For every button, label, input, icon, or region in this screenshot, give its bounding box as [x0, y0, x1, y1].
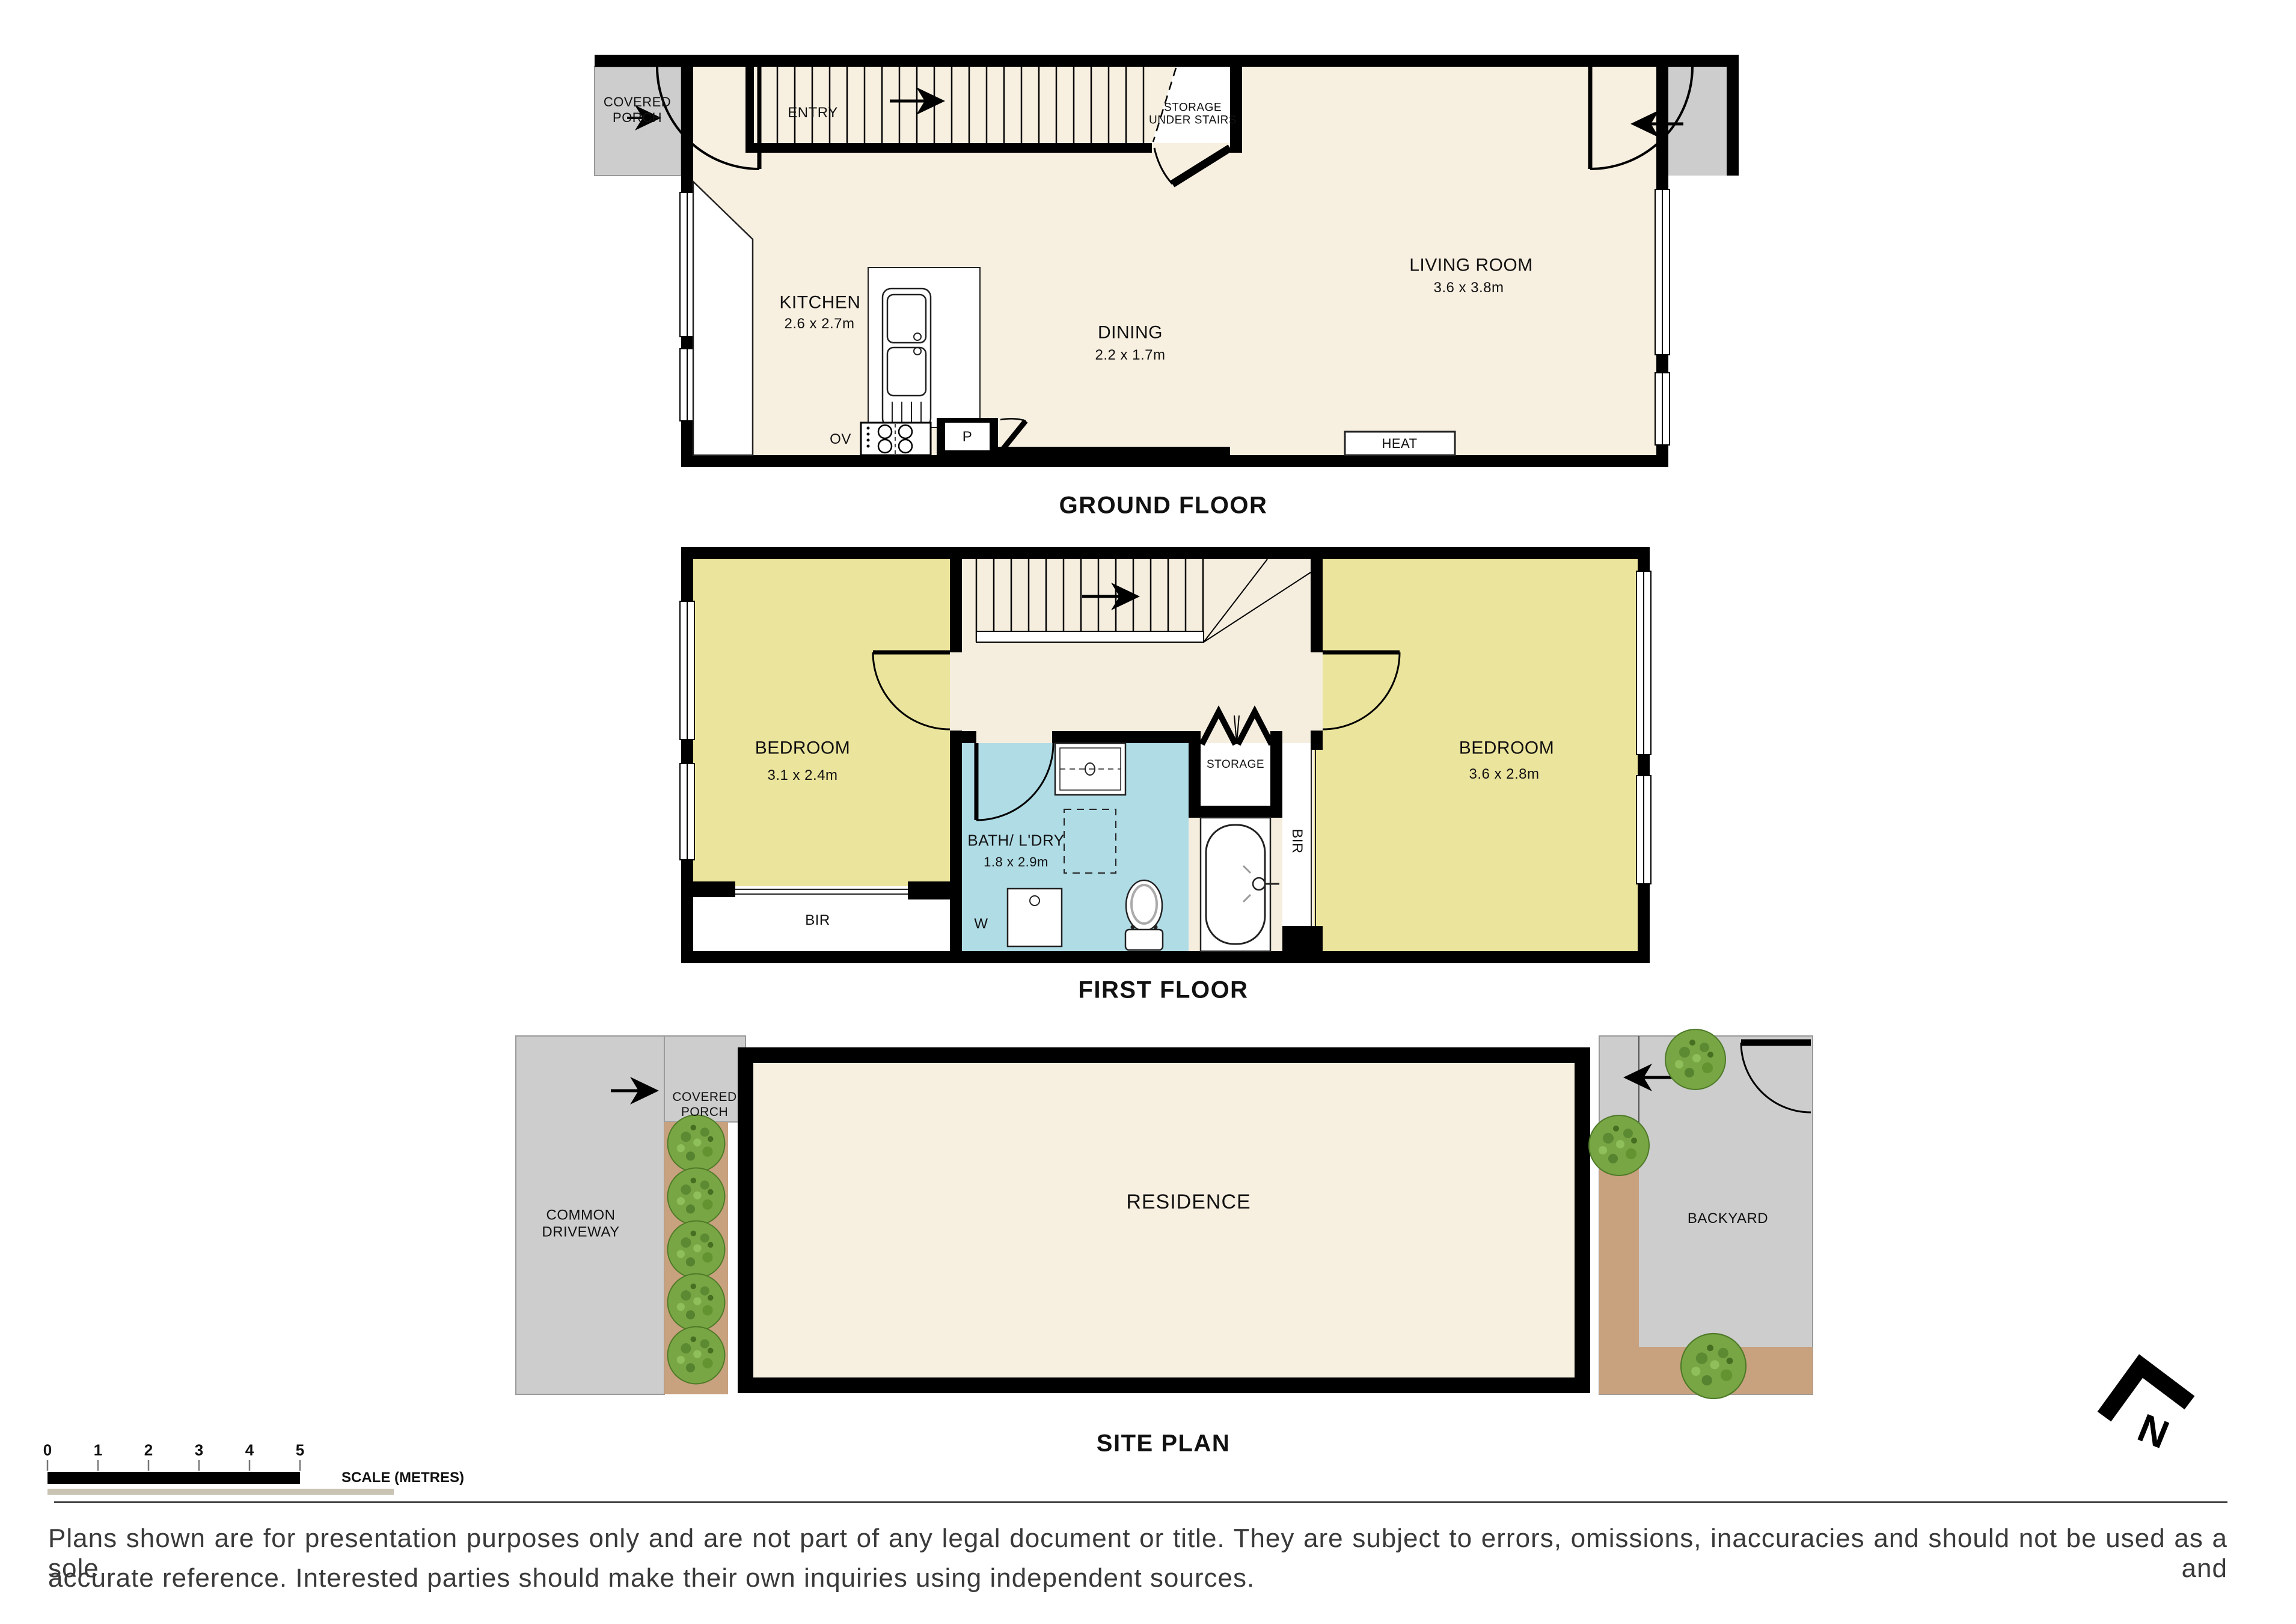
ff-bedroom-left-label: BEDROOM: [755, 737, 851, 758]
gf-dining-label: DINING: [1098, 322, 1163, 343]
gf-right-windows: [1655, 189, 1670, 445]
ground-floor-title: GROUND FLOOR: [1059, 491, 1268, 519]
scale-tick-5: 5: [296, 1441, 304, 1460]
gf-storage-under-stairs-label: STORAGE UNDER STAIRS: [1149, 102, 1237, 127]
ff-washer-label: W: [974, 916, 988, 933]
sp-common-driveway-label: COMMON DRIVEWAY: [542, 1207, 619, 1242]
gf-kitchen-dims: 2.6 x 2.7m: [784, 316, 854, 332]
gf-dining-dims: 2.2 x 1.7m: [1095, 347, 1165, 364]
gf-entry-label: ENTRY: [788, 105, 837, 121]
scale-tick-4: 4: [245, 1441, 254, 1460]
scale-tick-1: 1: [94, 1441, 102, 1460]
gf-living-room-dims: 3.6 x 3.8m: [1433, 280, 1504, 296]
first-floor-title: FIRST FLOOR: [1078, 976, 1248, 1004]
gf-living-room-label: LIVING ROOM: [1409, 254, 1533, 275]
floorplan-graphics: [0, 0, 2296, 1624]
ff-toilet: [1125, 880, 1163, 950]
ff-right-windows: [1636, 571, 1651, 884]
ff-bath-label: BATH/ L'DRY: [967, 832, 1064, 850]
sp-residence-block: [745, 1055, 1582, 1385]
scale-tick-2: 2: [144, 1441, 153, 1460]
site-plan-title: SITE PLAN: [1097, 1429, 1230, 1457]
gf-covered-porch-label: COVERED PORCH: [604, 94, 671, 126]
ff-bir-right-label: BIR: [1288, 829, 1305, 854]
ff-bedroom-right-label: BEDROOM: [1459, 737, 1555, 758]
ff-bir-left-label: BIR: [805, 912, 830, 929]
ff-left-windows: [680, 601, 694, 860]
scale-tick-3: 3: [195, 1441, 203, 1460]
gf-pantry-label: P: [963, 429, 973, 446]
gf-cooktop: [861, 423, 931, 455]
sp-covered-porch-label: COVERED PORCH: [672, 1090, 736, 1120]
ff-washer: [1008, 889, 1062, 946]
disclaimer-line2: accurate reference. Interested parties s…: [48, 1563, 2227, 1593]
floorplan-page: COVERED PORCH ENTRY STORAGE UNDER STAIRS…: [0, 0, 2296, 1624]
gf-kitchen-label: KITCHEN: [779, 292, 860, 313]
sp-backyard-label: BACKYARD: [1688, 1210, 1768, 1227]
ff-bedroom-left-dims: 3.1 x 2.4m: [767, 767, 837, 784]
gf-oven-label: OV: [830, 431, 851, 448]
gf-left-windows: [680, 192, 694, 421]
scale-tick-0: 0: [43, 1441, 52, 1460]
ff-storage-label: STORAGE: [1207, 758, 1264, 771]
ff-bedroom-right-dims: 3.6 x 2.8m: [1469, 766, 1539, 783]
ff-bedroom-left-floor: [693, 559, 950, 886]
footer-divider: [54, 1501, 2227, 1503]
scale-metres-label: SCALE (METRES): [341, 1469, 464, 1486]
ff-bathtub: [1201, 818, 1279, 951]
ff-bath-dims: 1.8 x 2.9m: [984, 854, 1049, 870]
ff-vanity: [1055, 743, 1125, 795]
sp-residence-label: RESIDENCE: [1126, 1190, 1251, 1214]
gf-kitchen-sink: [868, 268, 980, 427]
gf-heater-label: HEAT: [1382, 436, 1417, 452]
